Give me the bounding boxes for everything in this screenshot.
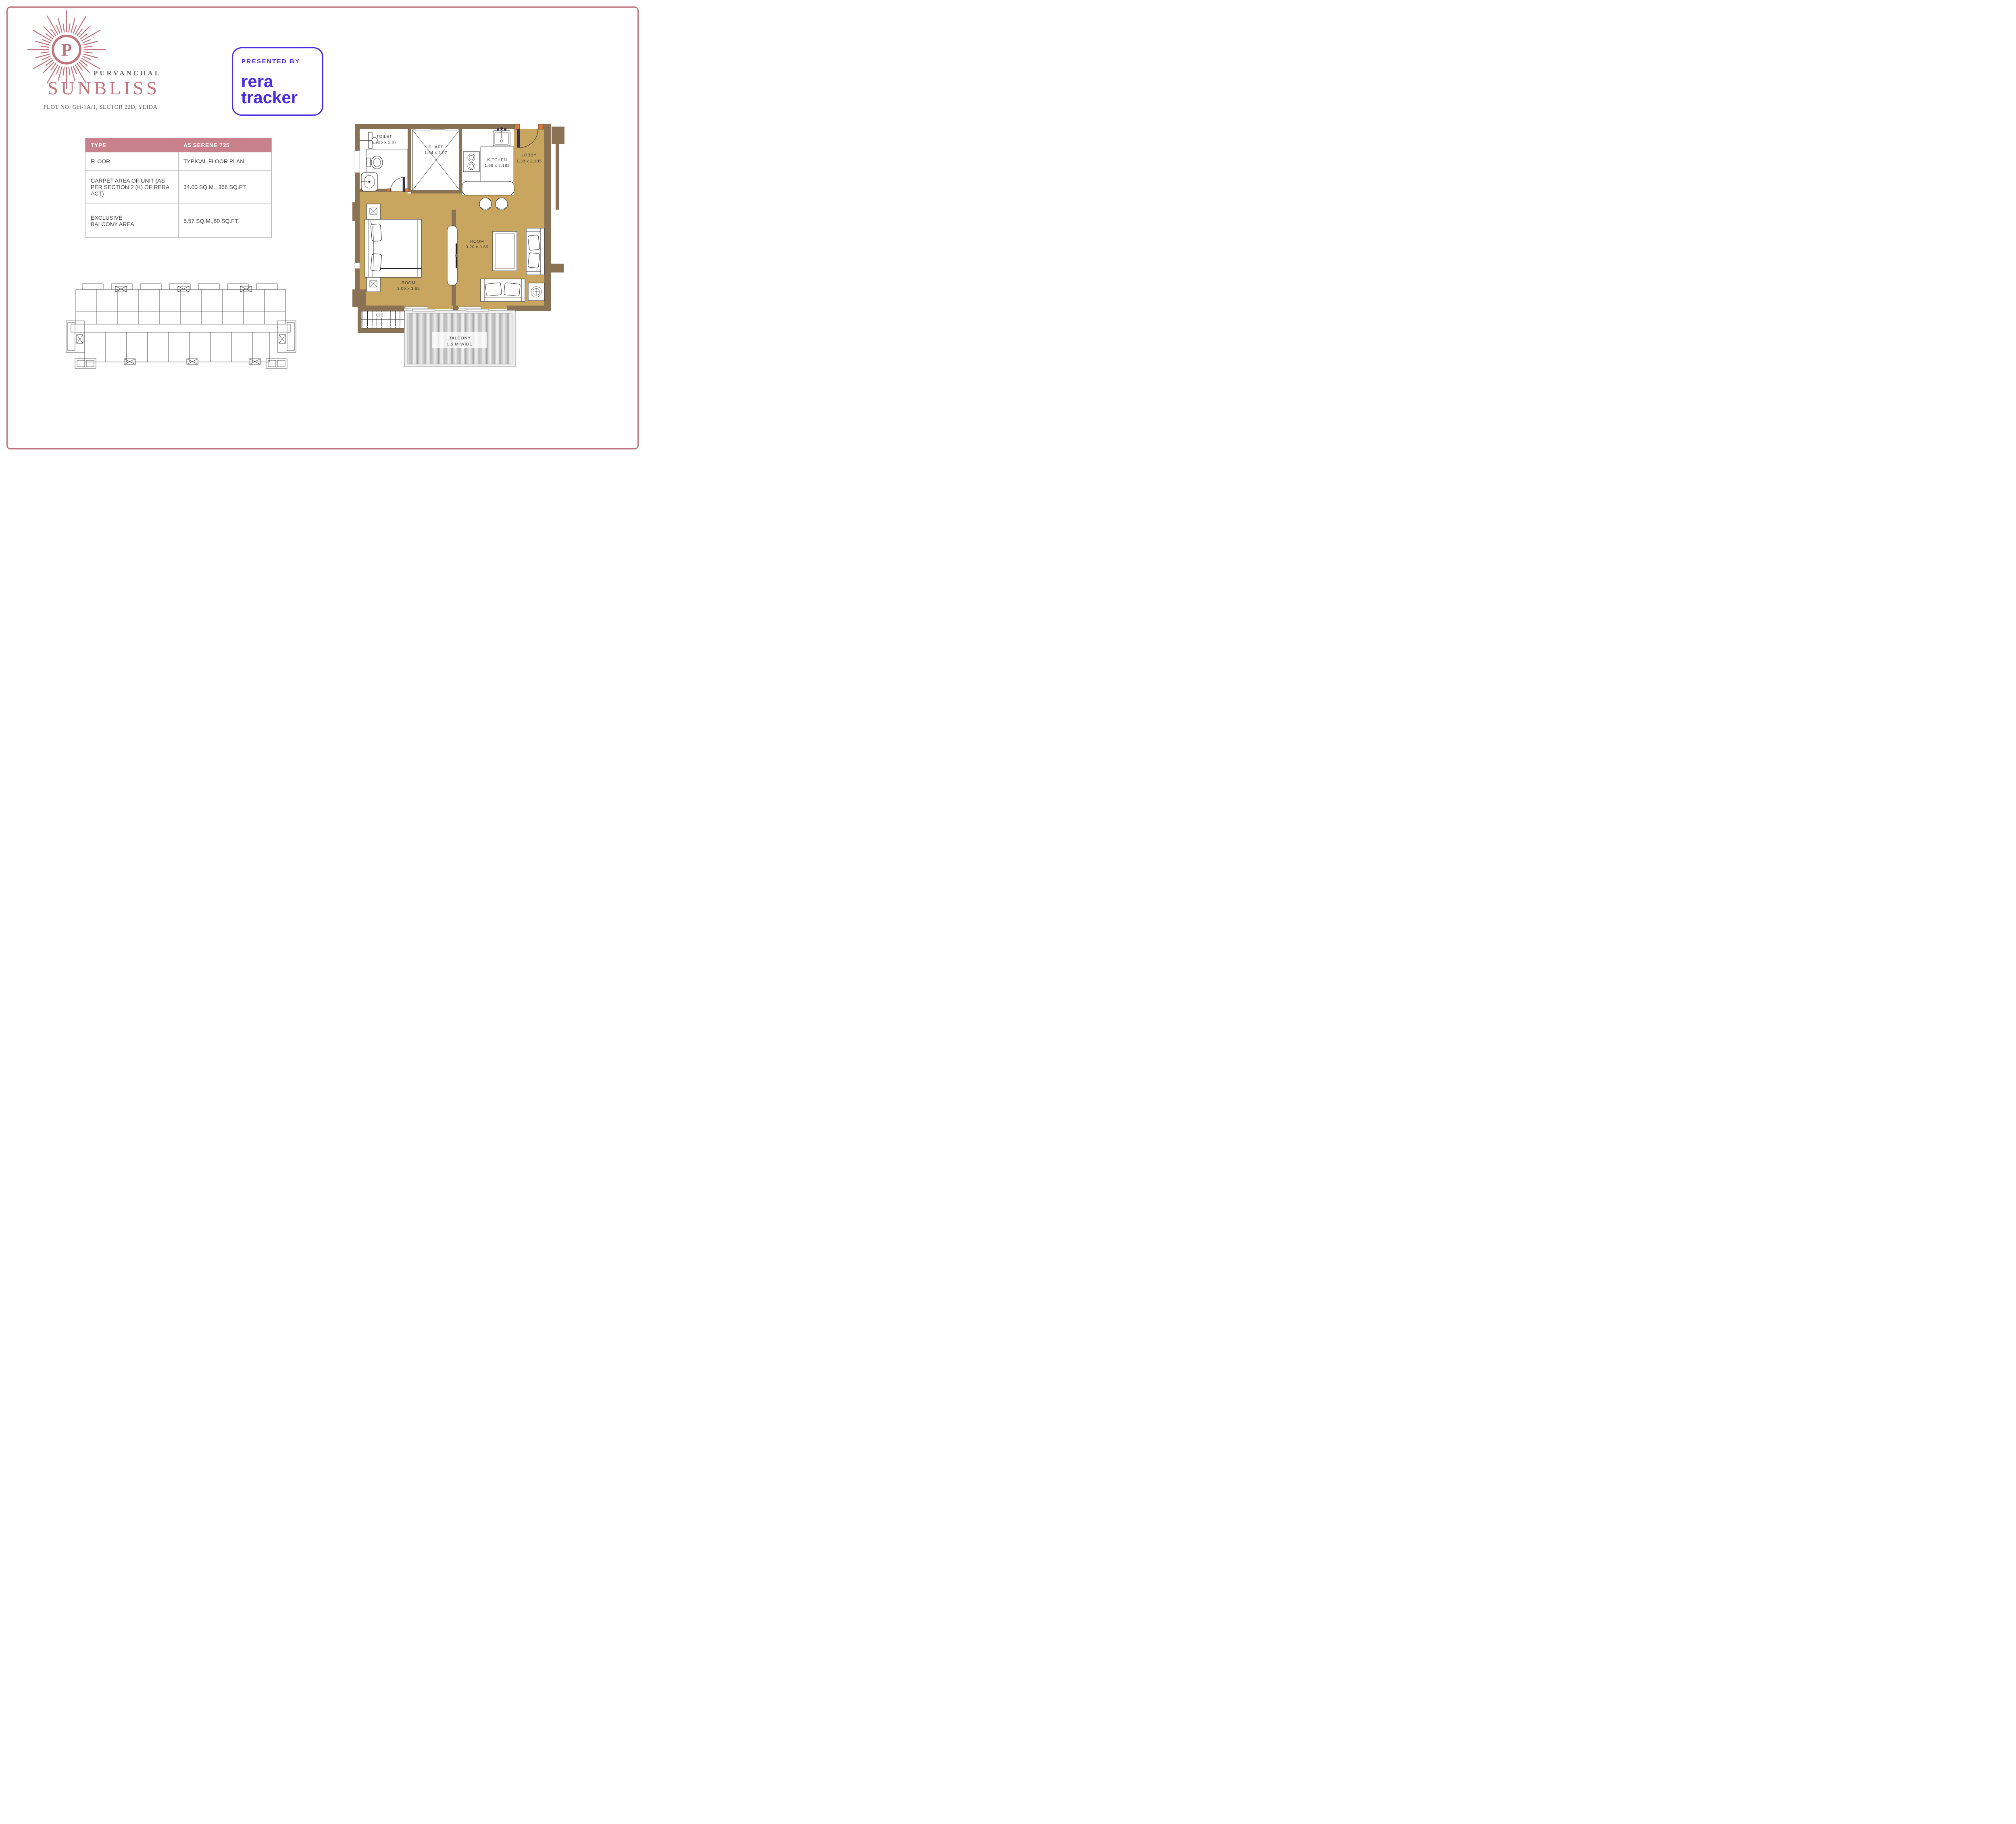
spec-header-unit: A5 SERENE 725 xyxy=(179,142,271,148)
row-label: CARPET AREA OF UNIT (AS PER SECTION 2 (K… xyxy=(91,177,173,197)
side-table-icon xyxy=(528,283,544,301)
bedside-table-icon xyxy=(367,204,380,219)
row-value: TYPICAL FLOOR PLAN xyxy=(179,158,271,164)
bedside-table-icon xyxy=(367,277,380,292)
lobby-dims: 1.38 x 2.185 xyxy=(516,159,542,164)
toilet-label: TOILET xyxy=(377,134,392,139)
badge-brand-line2: tracker xyxy=(241,89,298,106)
row-value: 34.00 SQ.M., 366 SQ.FT. xyxy=(179,184,271,190)
living-label: ROOM xyxy=(470,239,484,244)
bedroom-dims: 3.05 x 3.65 xyxy=(397,286,420,291)
kitchen-label: KITCHEN xyxy=(487,158,507,162)
kitchen-dims: 1.69 x 2.185 xyxy=(485,163,510,168)
spec-header-type: TYPE xyxy=(85,142,179,148)
sofa-icon xyxy=(526,228,544,275)
brochure-page: { "logo": { "monogram": "P", "brand": "P… xyxy=(0,0,645,456)
washbasin-icon xyxy=(361,173,377,191)
balcony-label: BALCONY xyxy=(448,336,471,341)
lobby-label: LOBBY xyxy=(521,153,536,158)
badge-eyebrow: PRESENTED BY xyxy=(242,58,300,65)
shaft-label: SHAFT xyxy=(429,145,444,150)
plot-address: PLOT NO. GH-1A/1, SECTOR 22D, YEIDA xyxy=(35,104,166,111)
building-key-plan xyxy=(64,282,298,370)
table-row: EXCLUSIVE BALCONY AREA 5.57 SQ.M.,60 SQ.… xyxy=(85,204,271,237)
table-row: CARPET AREA OF UNIT (AS PER SECTION 2 (K… xyxy=(85,170,271,204)
stool-icon xyxy=(479,198,492,210)
tv-unit-icon xyxy=(447,226,458,285)
stove-icon xyxy=(463,152,479,172)
bedroom-label: ROOM xyxy=(402,281,415,285)
keyplan-bottom-block xyxy=(85,332,269,362)
spec-table-header: TYPE A5 SERENE 725 xyxy=(85,138,271,152)
row-label: EXCLUSIVE BALCONY AREA xyxy=(91,214,134,227)
keyplan-bottom-partitions xyxy=(106,332,252,362)
project-name: SUNBLISS xyxy=(40,79,168,98)
shaft-box xyxy=(412,128,460,190)
unit-floor-plan: TOILET 1.525 x 2.07 SHAFT 1.54 x 2.07 KI… xyxy=(352,123,577,370)
balcony-dims: 1.5 M WIDE xyxy=(447,342,473,347)
logo-monogram: P xyxy=(61,40,72,60)
keyplan-balconies xyxy=(82,284,277,289)
kitchen-counter xyxy=(462,181,514,195)
spec-table: TYPE A5 SERENE 725 FLOOR TYPICAL FLOOR P… xyxy=(85,138,272,238)
keyplan-corner-lifts xyxy=(75,359,287,368)
sofa-icon xyxy=(481,279,525,302)
table-row: FLOOR TYPICAL FLOOR PLAN xyxy=(85,152,271,170)
stool-icon xyxy=(496,198,508,210)
presented-by-badge: PRESENTED BY rera tracker xyxy=(232,47,323,116)
shaft-dims: 1.54 x 2.07 xyxy=(425,150,447,155)
toilet-dims: 1.525 x 2.07 xyxy=(372,140,397,145)
keyplan-corridor xyxy=(71,324,290,332)
highlighted-unit xyxy=(127,332,148,362)
wc-icon xyxy=(367,156,383,169)
brand-name: PURVANCHAL xyxy=(91,69,164,77)
row-value: 5.57 SQ.M.,60 SQ.FT. xyxy=(179,218,271,224)
cupboard-label: C|B xyxy=(376,313,384,318)
badge-brand-line1: rera xyxy=(241,73,273,89)
keyplan-shafts xyxy=(115,286,260,364)
row-label: FLOOR xyxy=(91,158,110,164)
keyplan-left-core xyxy=(66,321,85,352)
living-dims: 3.20 x 3.65 xyxy=(466,245,488,250)
keyplan-top-partitions xyxy=(97,289,264,324)
bed-icon xyxy=(365,219,421,277)
keyplan-right-core xyxy=(277,321,296,352)
table-icon xyxy=(493,231,517,271)
